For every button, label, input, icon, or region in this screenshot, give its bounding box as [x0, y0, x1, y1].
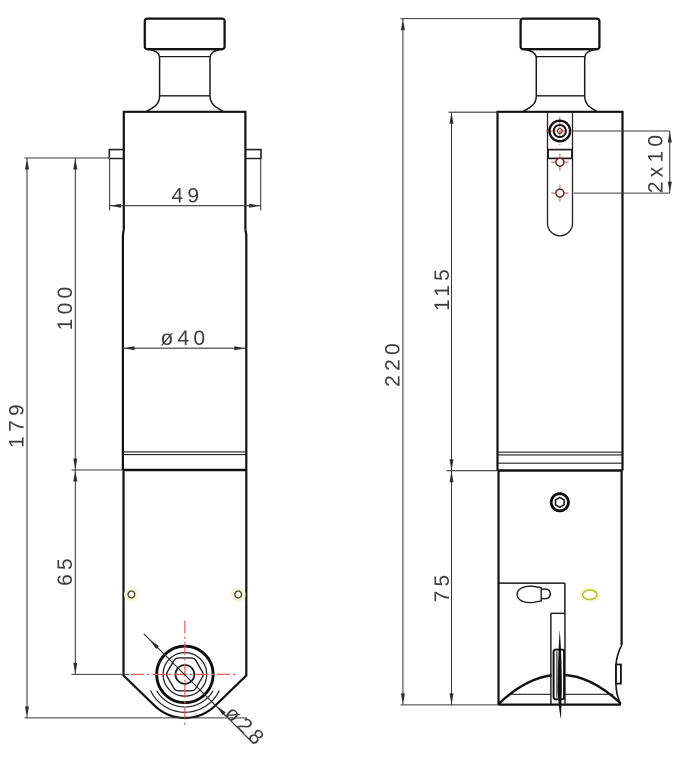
- svg-text:2x10: 2x10: [644, 131, 667, 193]
- svg-text:179: 179: [6, 400, 29, 448]
- svg-text:220: 220: [382, 339, 405, 387]
- svg-text:115: 115: [431, 265, 454, 311]
- svg-text:65: 65: [54, 554, 77, 586]
- svg-text:75: 75: [431, 571, 454, 603]
- svg-text:49: 49: [172, 185, 204, 208]
- svg-text:ø40: ø40: [161, 327, 210, 350]
- svg-text:ø28: ø28: [220, 702, 271, 753]
- svg-text:100: 100: [54, 283, 77, 331]
